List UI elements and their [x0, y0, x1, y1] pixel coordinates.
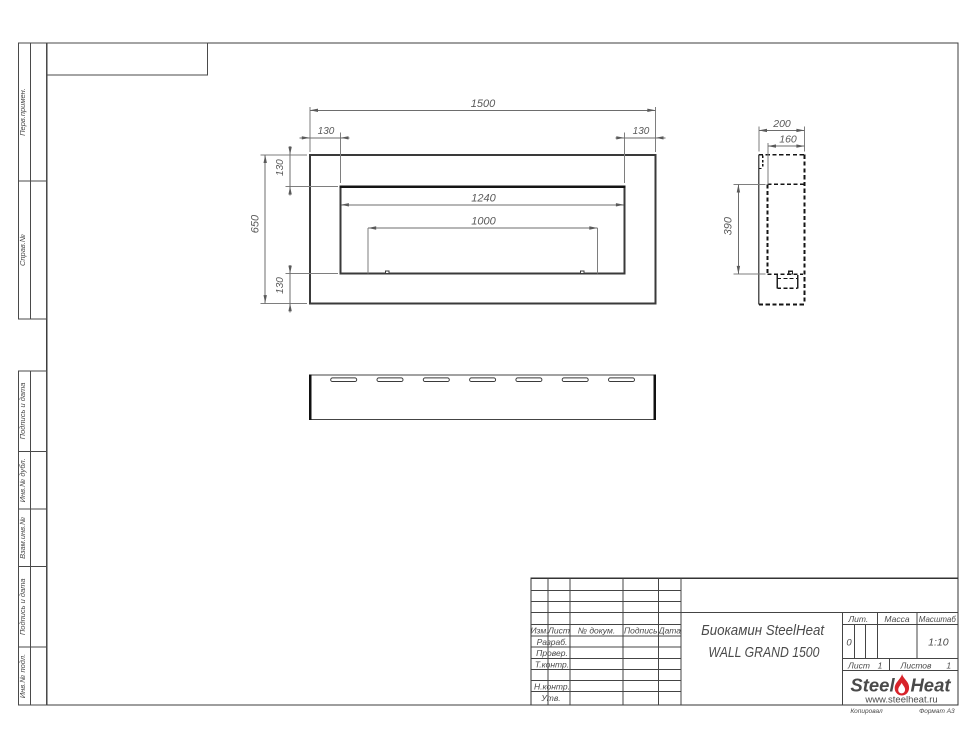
svg-text:Лист: Лист — [547, 626, 570, 636]
svg-text:Heat: Heat — [910, 675, 951, 696]
svg-text:Дата: Дата — [658, 626, 682, 636]
svg-text:Подпись: Подпись — [624, 626, 658, 636]
svg-text:№ докум.: № докум. — [578, 626, 615, 636]
svg-text:1000: 1000 — [471, 215, 496, 227]
svg-text:Н.контр.: Н.контр. — [534, 682, 570, 692]
svg-text:1240: 1240 — [471, 192, 496, 204]
svg-text:1: 1 — [878, 660, 883, 670]
svg-text:160: 160 — [779, 134, 797, 146]
svg-text:650: 650 — [250, 214, 262, 233]
svg-text:WALL GRAND 1500: WALL GRAND 1500 — [708, 645, 819, 661]
svg-text:1: 1 — [946, 660, 951, 670]
svg-text:390: 390 — [723, 216, 735, 235]
svg-text:Инв.№ подл.: Инв.№ подл. — [18, 654, 27, 698]
svg-text:Провер.: Провер. — [536, 648, 568, 658]
svg-text:Изм.: Изм. — [530, 626, 548, 636]
svg-text:www.steelheat.ru: www.steelheat.ru — [864, 695, 937, 706]
svg-text:1500: 1500 — [471, 98, 496, 110]
svg-text:Формат А3: Формат А3 — [919, 708, 955, 715]
svg-text:Подпись и дата: Подпись и дата — [18, 383, 27, 440]
svg-text:Т.контр.: Т.контр. — [535, 659, 569, 669]
svg-text:130: 130 — [633, 126, 650, 137]
svg-text:200: 200 — [772, 118, 791, 130]
svg-text:Инв.№ дубл.: Инв.№ дубл. — [18, 458, 27, 502]
svg-text:Разраб.: Разраб. — [537, 637, 568, 647]
svg-text:Масштаб: Масштаб — [919, 614, 957, 624]
svg-text:Взам.инв.№: Взам.инв.№ — [18, 517, 27, 559]
svg-text:Масса: Масса — [884, 614, 909, 624]
svg-text:Steel: Steel — [850, 675, 895, 696]
svg-text:Лист: Лист — [847, 660, 870, 670]
svg-text:Утв.: Утв. — [540, 693, 560, 703]
svg-text:Справ.№: Справ.№ — [18, 234, 27, 266]
svg-text:130: 130 — [318, 126, 335, 137]
svg-text:Лит.: Лит. — [847, 614, 868, 624]
svg-text:1:10: 1:10 — [928, 636, 949, 648]
svg-text:Биокамин SteelHeat: Биокамин SteelHeat — [701, 623, 825, 639]
svg-text:Перв.примен.: Перв.примен. — [18, 88, 27, 136]
svg-text:Подпись и дата: Подпись и дата — [18, 578, 27, 635]
svg-text:130: 130 — [275, 277, 286, 294]
svg-text:0: 0 — [846, 637, 852, 648]
svg-text:Листов: Листов — [900, 660, 933, 670]
svg-text:Копировал: Копировал — [850, 708, 883, 715]
svg-text:130: 130 — [275, 159, 286, 176]
